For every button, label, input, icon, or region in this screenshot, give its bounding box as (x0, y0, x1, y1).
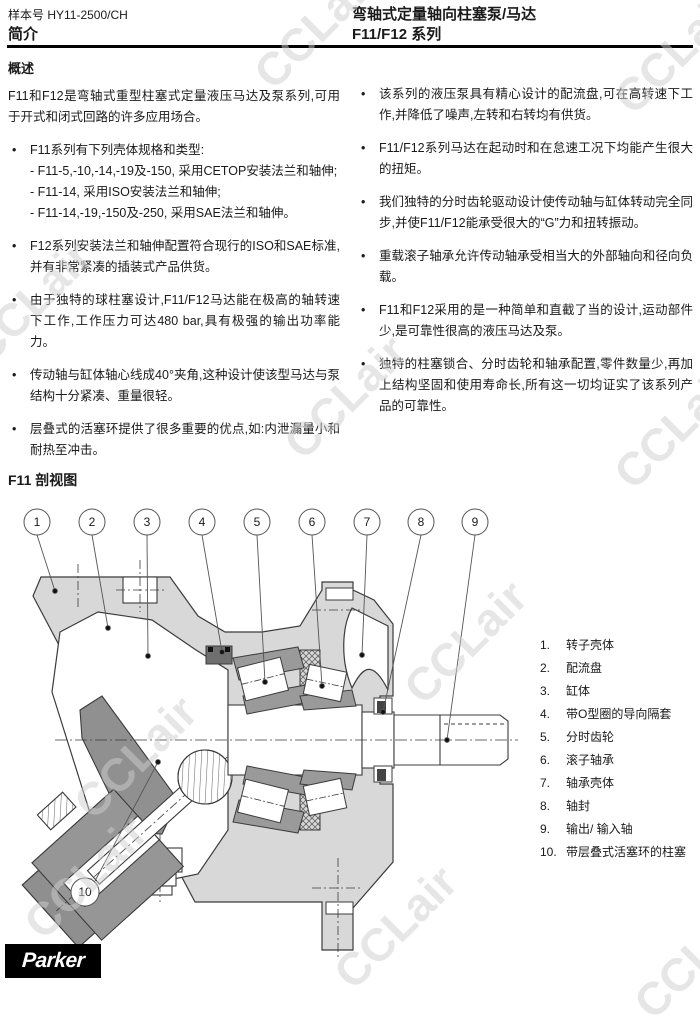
callout-10: 10 (71, 878, 99, 906)
legend-number: 8. (540, 795, 566, 818)
legend-item: 2.配流盘 (540, 657, 686, 680)
overview-right-column: • 该系列的液压泵具有精心设计的配流盘,可在高转速下工作,并降低了噪声,左转和右… (357, 84, 693, 429)
bullet-text: 重载滚子轴承允许传动轴承受相当大的外部轴向和径向负载。 (379, 249, 693, 284)
bullet-marker: • (12, 365, 16, 386)
legend-label: 输出/ 输入轴 (566, 818, 633, 841)
bullet-marker: • (12, 236, 16, 257)
legend-number: 4. (540, 703, 566, 726)
svg-text:4: 4 (199, 515, 206, 529)
right-bullet-list: • 该系列的液压泵具有精心设计的配流盘,可在高转速下工作,并降低了噪声,左转和右… (357, 84, 693, 417)
bullet-text: 由于独特的球柱塞设计,F11/F12马达能在极高的轴转速下工作,工作压力可达48… (30, 293, 340, 349)
bullet-marker: • (361, 354, 365, 375)
catalog-page: { "header": { "catalog_no": "样本号 HY11-25… (0, 0, 700, 986)
bullet-text: F11/F12系列马达在起动时和在怠速工况下均能产生很大的扭矩。 (379, 141, 693, 176)
svg-text:5: 5 (254, 515, 261, 529)
legend-label: 转子壳体 (566, 634, 614, 657)
parker-logo-text: Parker (21, 949, 85, 973)
legend-item: 8.轴封 (540, 795, 686, 818)
bullet-marker: • (361, 300, 365, 321)
legend-number: 10. (540, 841, 566, 864)
bullet-marker: • (361, 246, 365, 267)
callout-5: 5 (244, 509, 270, 535)
legend-label: 配流盘 (566, 657, 602, 680)
legend-item: 9.输出/ 输入轴 (540, 818, 686, 841)
bullet-item: • 我们独特的分时齿轮驱动设计使传动轴与缸体转动完全同步,并使F11/F12能承… (357, 192, 693, 234)
legend-item: 5.分时齿轮 (540, 726, 686, 749)
bullet-item: • F11系列有下列壳体规格和类型: - F11-5,-10,-14,-19及-… (8, 140, 340, 224)
bullet-marker: • (361, 138, 365, 159)
callout-3: 3 (134, 509, 160, 535)
svg-text:9: 9 (472, 515, 479, 529)
bullet-item: • F11/F12系列马达在起动时和在怠速工况下均能产生很大的扭矩。 (357, 138, 693, 180)
bullet-item: • 重载滚子轴承允许传动轴承受相当大的外部轴向和径向负载。 (357, 246, 693, 288)
bullet-item: • F11和F12采用的是一种简单和直截了当的设计,运动部件少,是可靠性很高的液… (357, 300, 693, 342)
bullet-text: 传动轴与缸体轴心线成40°夹角,这种设计使该型马达与泵结构十分紧凑、重量很轻。 (30, 368, 340, 403)
legend-number: 9. (540, 818, 566, 841)
page-subtitle: F11/F12 系列 (352, 23, 441, 44)
legend-number: 7. (540, 772, 566, 795)
legend-number: 1. (540, 634, 566, 657)
catalog-number: 样本号 HY11-2500/CH (8, 6, 128, 23)
cutaway-section-heading: F11 剖视图 (8, 470, 77, 490)
bullet-text: 独特的柱塞锁合、分时齿轮和轴承配置,零件数量少,再加上结构坚固和使用寿命长,所有… (379, 357, 693, 413)
legend-number: 2. (540, 657, 566, 680)
legend-item: 7.轴承壳体 (540, 772, 686, 795)
parts-legend: 1.转子壳体 2.配流盘 3.缸体 4.带O型圈的导向隔套 5.分时齿轮 6.滚… (540, 634, 686, 864)
legend-number: 5. (540, 726, 566, 749)
bullet-item: • 传动轴与缸体轴心线成40°夹角,这种设计使该型马达与泵结构十分紧凑、重量很轻… (8, 365, 340, 407)
legend-label: 缸体 (566, 680, 590, 703)
bullet-marker: • (361, 84, 365, 105)
legend-item: 3.缸体 (540, 680, 686, 703)
legend-item: 6.滚子轴承 (540, 749, 686, 772)
overview-left-column: 概述 F11和F12是弯轴式重型柱塞式定量液压马达及泵系列,可用于开式和闭式回路… (8, 58, 340, 473)
header-rule (7, 45, 693, 48)
left-bullet-list: • F11系列有下列壳体规格和类型: - F11-5,-10,-14,-19及-… (8, 140, 340, 461)
overview-heading: 概述 (8, 58, 340, 79)
svg-text:6: 6 (309, 515, 316, 529)
bullet-item: • 层叠式的活塞环提供了很多重要的优点,如:内泄漏量小和耐热至冲击。 (8, 419, 340, 461)
legend-label: 带O型圈的导向隔套 (566, 703, 671, 726)
bullet-text: 层叠式的活塞环提供了很多重要的优点,如:内泄漏量小和耐热至冲击。 (30, 422, 340, 457)
bullet-text: 我们独特的分时齿轮驱动设计使传动轴与缸体转动完全同步,并使F11/F12能承受很… (379, 195, 693, 230)
legend-label: 滚子轴承 (566, 749, 614, 772)
legend-label: 轴封 (566, 795, 590, 818)
bullet-item: • 独特的柱塞锁合、分时齿轮和轴承配置,零件数量少,再加上结构坚固和使用寿命长,… (357, 354, 693, 417)
callout-9: 9 (462, 509, 488, 535)
bullet-subitem: - F11-5,-10,-14,-19及-150, 采用CETOP安装法兰和轴伸… (30, 161, 340, 182)
bullet-marker: • (12, 140, 16, 161)
svg-text:7: 7 (364, 515, 371, 529)
legend-item: 4.带O型圈的导向隔套 (540, 703, 686, 726)
callout-4: 4 (189, 509, 215, 535)
legend-number: 6. (540, 749, 566, 772)
bullet-text: F11和F12采用的是一种简单和直截了当的设计,运动部件少,是可靠性很高的液压马… (379, 303, 693, 338)
callout-6: 6 (299, 509, 325, 535)
bullet-marker: • (361, 192, 365, 213)
bullet-marker: • (12, 419, 16, 440)
legend-item: 1.转子壳体 (540, 634, 686, 657)
legend-label: 轴承壳体 (566, 772, 614, 795)
page-title: 弯轴式定量轴向柱塞泵/马达 (352, 3, 536, 24)
callout-1: 1 (24, 509, 50, 535)
callout-8: 8 (408, 509, 434, 535)
bullet-item: • 该系列的液压泵具有精心设计的配流盘,可在高转速下工作,并降低了噪声,左转和右… (357, 84, 693, 126)
callout-2: 2 (79, 509, 105, 535)
legend-label: 分时齿轮 (566, 726, 614, 749)
bullet-text: F12系列安装法兰和轴伸配置符合现行的ISO和SAE标准,并有非常紧凑的插装式产… (30, 239, 340, 274)
svg-text:3: 3 (144, 515, 151, 529)
legend-item: 10.带层叠式活塞环的柱塞 (540, 841, 686, 864)
legend-label: 带层叠式活塞环的柱塞 (566, 841, 686, 864)
svg-text:8: 8 (418, 515, 425, 529)
svg-text:10: 10 (78, 885, 92, 899)
bullet-marker: • (12, 290, 16, 311)
svg-text:2: 2 (89, 515, 96, 529)
bullet-subitem: - F11-14, 采用ISO安装法兰和轴伸; (30, 182, 340, 203)
legend-number: 3. (540, 680, 566, 703)
bullet-text: 该系列的液压泵具有精心设计的配流盘,可在高转速下工作,并降低了噪声,左转和右转均… (379, 87, 693, 122)
bullet-item: • 由于独特的球柱塞设计,F11/F12马达能在极高的轴转速下工作,工作压力可达… (8, 290, 340, 353)
guide-sleeve (206, 646, 232, 664)
bullet-subitem: - F11-14,-19,-150及-250, 采用SAE法兰和轴伸。 (30, 203, 340, 224)
bullet-item: • F12系列安装法兰和轴伸配置符合现行的ISO和SAE标准,并有非常紧凑的插装… (8, 236, 340, 278)
parker-logo: Parker (5, 944, 101, 978)
bullet-text: F11系列有下列壳体规格和类型: (30, 143, 204, 157)
page-section-label: 简介 (8, 23, 38, 44)
svg-text:1: 1 (34, 515, 41, 529)
overview-intro: F11和F12是弯轴式重型柱塞式定量液压马达及泵系列,可用于开式和闭式回路的许多… (8, 86, 340, 128)
gland-hatched (37, 792, 76, 830)
callout-7: 7 (354, 509, 380, 535)
